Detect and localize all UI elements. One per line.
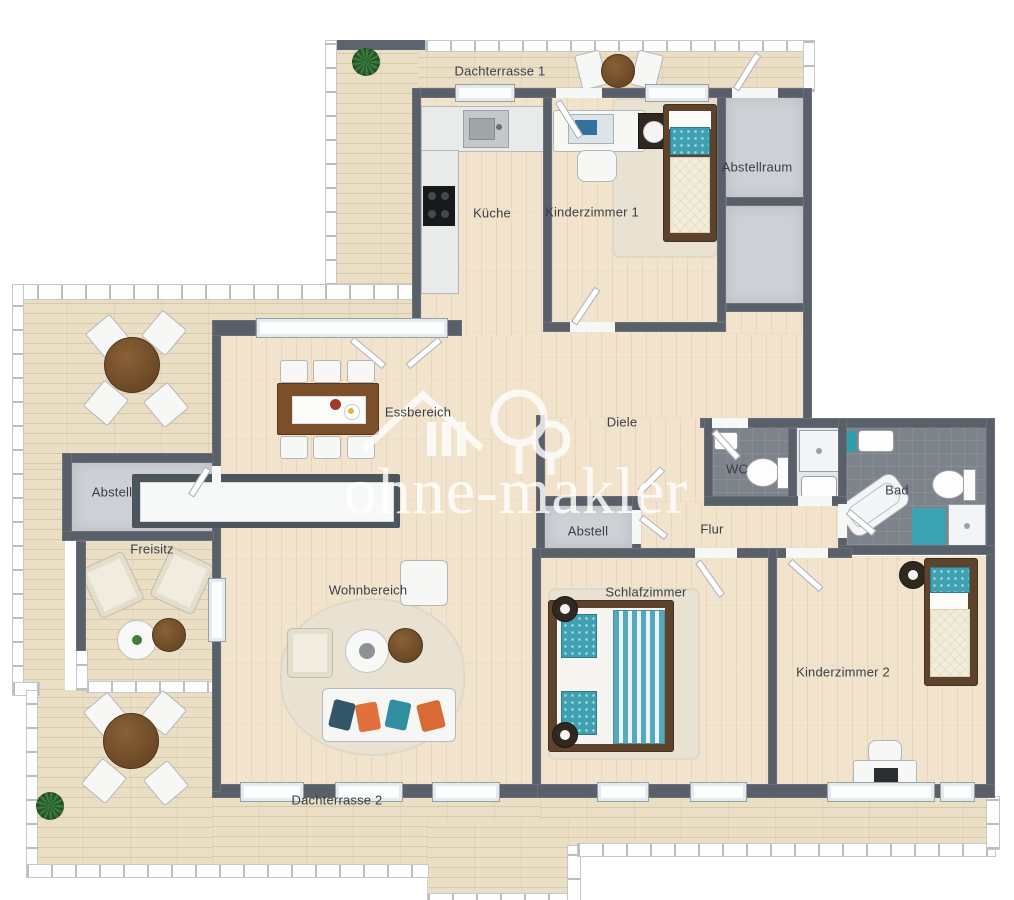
window-sz-2 (690, 782, 747, 802)
window-wohnbereich-west (208, 578, 226, 642)
window-wohn-3 (432, 782, 500, 802)
sofa-pillow-orange-2 (416, 700, 446, 733)
dining-chair-5 (313, 436, 341, 459)
door-opening-abstell-center (632, 510, 641, 544)
parapet-top-dark (333, 40, 425, 50)
bed-pillow-teal (670, 127, 710, 155)
room-label-diele: Diele (607, 415, 638, 430)
window-kz1 (645, 84, 709, 102)
terrace-2-right-strip (540, 798, 992, 848)
room-label-abstellraum: Abstellraum (722, 160, 793, 175)
door-opening-kz1-top (556, 88, 602, 98)
single-bed-kz2 (924, 558, 978, 686)
bad-toilet-bowl (932, 470, 966, 499)
sofa (322, 688, 456, 742)
bad-sink (858, 430, 894, 452)
coffee-table-white (345, 629, 389, 673)
railing-terrace1-left (325, 40, 337, 286)
lamp-kz1 (643, 121, 665, 143)
sofa-pillow-orange (355, 701, 382, 732)
wall-west-long (212, 320, 221, 792)
door-opening-schlafzimmer (695, 548, 737, 558)
table-decor-red (330, 399, 341, 410)
sofa-pillow-navy (328, 699, 356, 731)
parapet-left-wing (12, 284, 420, 300)
bed-blanket (670, 157, 710, 233)
shower-drain (964, 523, 970, 529)
railing-freisitz (86, 681, 214, 693)
dining-chair-6 (347, 436, 375, 459)
sink-basin (469, 118, 495, 140)
shower-basin (801, 476, 837, 498)
table-plant (132, 635, 142, 645)
shower-tray (799, 430, 839, 472)
bed-blanket-striped (613, 610, 665, 744)
wc-toilet-bowl (746, 458, 780, 487)
window-kueche (455, 84, 515, 102)
room-floor-abstellraum (726, 97, 803, 197)
door-opening-wc (712, 418, 748, 428)
armchair-wohn-left (287, 628, 333, 678)
window-essbereich (256, 318, 448, 338)
room-label-kinderzimmer2: Kinderzimmer 2 (796, 665, 890, 680)
room-floor-storage2 (726, 206, 803, 303)
bed-pillow-teal (930, 567, 970, 593)
room-label-bad: Bad (885, 483, 909, 498)
desk-chair-kz1 (577, 150, 617, 182)
wall-abstell-left-west (62, 453, 72, 541)
single-bed-kz1 (663, 104, 717, 242)
room-label-essbereich: Essbereich (385, 405, 451, 420)
railing-left-outer (12, 284, 24, 692)
wall-essbereich-stub-r (446, 320, 462, 336)
terrace-left-strip (20, 464, 65, 690)
burner (428, 192, 436, 200)
window-kz2-2 (940, 782, 975, 802)
dining-chair-2 (313, 360, 341, 383)
terrace1-table (601, 54, 635, 88)
window-kz2-1 (827, 782, 935, 802)
wall-abstell-center-top (536, 496, 641, 506)
plate-food (348, 408, 354, 414)
nightstand-sz-bottom (552, 722, 578, 748)
wall-wc-shower (788, 428, 797, 506)
floorplan: ohne-makler Dachterrasse 1 Küche Kinderz… (0, 0, 1014, 900)
room-label-flur: Flur (700, 522, 723, 537)
terrace-left-table (104, 337, 160, 393)
nightstand-lamp (908, 570, 918, 580)
wall-right-outer (986, 418, 995, 798)
room-label-wc: WC (726, 462, 748, 477)
wall-kz1-abstellraum (717, 97, 726, 322)
dining-chair-4 (280, 436, 308, 459)
railing-terrace1-right (803, 40, 815, 92)
potted-plant-bottom (36, 792, 64, 820)
freisitz-table-brown (152, 618, 186, 652)
railing-freisitz-left (76, 649, 88, 691)
cooktop (423, 186, 455, 226)
railing-bottom-1 (26, 864, 429, 878)
sofa-pillow-teal (384, 699, 411, 731)
room-floor-diele-south (545, 418, 704, 502)
coffee-table-bowl (359, 643, 375, 659)
coffee-table-brown (388, 628, 423, 663)
wall-abstell-left-bottom (62, 531, 214, 541)
terrace-1-column (333, 48, 418, 284)
window-sz-1 (597, 782, 649, 802)
nightstand-lamp (560, 604, 570, 614)
burner (441, 192, 449, 200)
room-label-schlafzimmer: Schlafzimmer (605, 585, 686, 600)
door-opening-kz2 (786, 548, 828, 558)
burner (441, 210, 449, 218)
railing-bottom-left-outer (26, 690, 38, 874)
room-label-kueche: Küche (473, 206, 511, 221)
terrace2-table (103, 713, 159, 769)
kitchen-sink (463, 110, 509, 148)
sink-faucet (496, 124, 502, 130)
nightstand-sz-top (552, 596, 578, 622)
table-plate (344, 404, 360, 420)
door-opening-bad (838, 504, 847, 538)
nightstand-lamp (560, 730, 570, 740)
freisitz-table-white (117, 620, 157, 660)
terrace-2-bump (427, 820, 577, 898)
room-label-dachterrasse1: Dachterrasse 1 (455, 64, 546, 79)
wall-storage2-bottom (726, 303, 806, 312)
shower-drain (816, 448, 822, 454)
bad-toilet-tank (963, 469, 976, 501)
bed-sheet (930, 593, 968, 609)
room-label-abstell-left: Abstell (92, 485, 132, 500)
nightstand-kz2 (899, 561, 927, 589)
wall-schlafzimmer-top (532, 548, 777, 558)
wall-freisitz-left (76, 541, 86, 651)
storage-unit-top (140, 482, 394, 522)
room-label-freisitz: Freisitz (130, 542, 174, 557)
room-floor-diele-east (726, 312, 803, 334)
railing-top (425, 40, 812, 52)
wall-bad-bottom (838, 545, 995, 555)
potted-plant-top (352, 48, 380, 76)
room-floor-flur (641, 502, 838, 548)
storage-unit (132, 474, 400, 528)
wall-abstellraum-divider (726, 197, 806, 206)
wall-abstell-left-top (62, 453, 214, 463)
bad-shower-tray (948, 504, 986, 549)
door-opening-abstell-left (212, 466, 221, 496)
railing-right-end (986, 796, 1000, 850)
wall-schlafzimmer-left (532, 548, 541, 796)
bath-mat (912, 508, 946, 546)
railing-bump-bottom (427, 893, 581, 900)
dining-chair-1 (280, 360, 308, 383)
dining-table (277, 383, 379, 435)
railing-bottom-2 (577, 843, 996, 857)
wall-kueche-left (412, 88, 421, 332)
wall-sz-kz2 (768, 548, 777, 796)
bad-towel (847, 431, 856, 452)
wall-wc-left (704, 418, 713, 506)
wall-diele-stub (536, 415, 545, 556)
door-opening-shower (798, 496, 832, 506)
burner (428, 210, 436, 218)
bed-blanket (930, 609, 970, 677)
room-label-wohnbereich: Wohnbereich (329, 583, 408, 598)
wall-essbereich-stub-l (212, 320, 256, 336)
room-label-dachterrasse2: Dachterrasse 2 (292, 793, 383, 808)
room-label-kinderzimmer1: Kinderzimmer 1 (545, 205, 639, 220)
dining-chair-3 (347, 360, 375, 383)
wall-right-upper (803, 88, 812, 420)
room-label-abstell-center: Abstell (568, 524, 608, 539)
